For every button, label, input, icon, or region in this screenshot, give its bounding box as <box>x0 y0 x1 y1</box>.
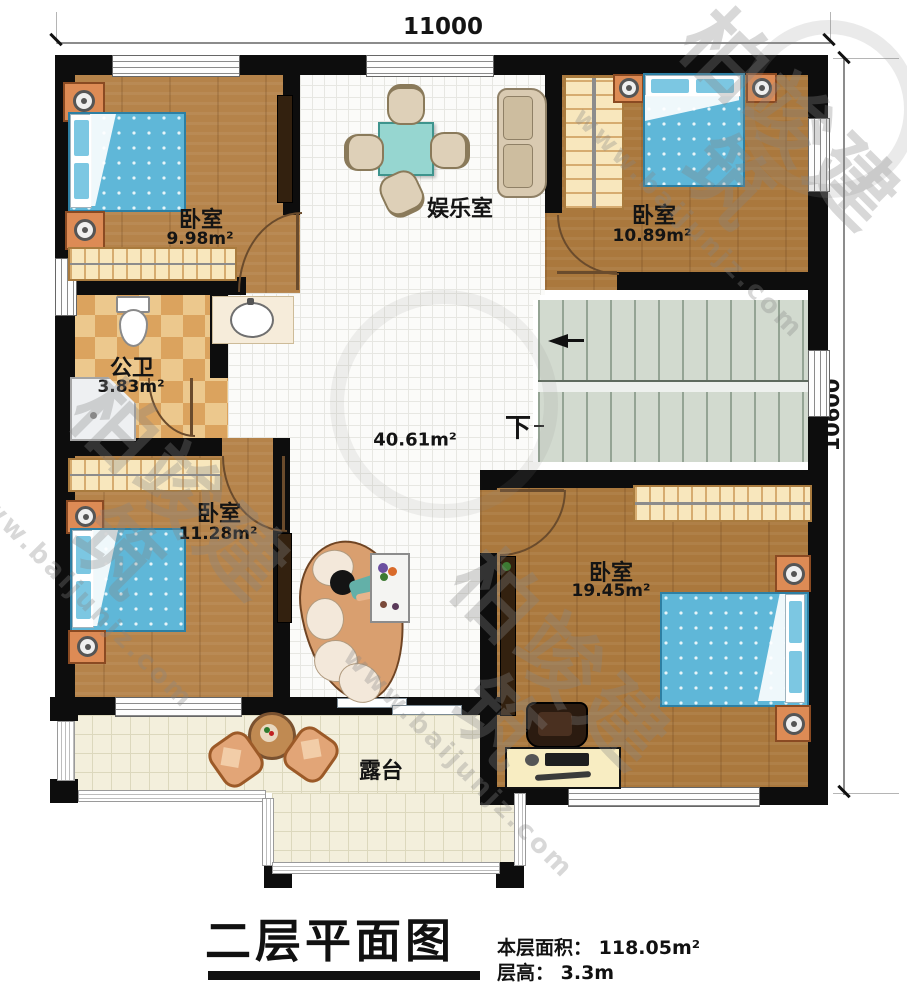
room-area-hall: 40.61m² <box>373 430 457 451</box>
terrace-post <box>50 697 78 721</box>
desk-chair-seat <box>538 712 572 736</box>
window-bottom-bedroom-se <box>568 787 760 807</box>
leaf-icon <box>380 573 388 581</box>
stairs-down-leader <box>534 425 544 427</box>
bed <box>70 528 186 632</box>
bed-sheet-fold <box>758 594 785 701</box>
pillow-icon <box>75 535 92 575</box>
dimension-label-top: 11000 <box>403 14 483 40</box>
floor-plan-canvas: 11000 10600 下 <box>0 0 907 992</box>
decor-dot <box>380 601 387 608</box>
pillow-icon <box>788 600 803 644</box>
nightstand <box>746 73 777 103</box>
flower-icon <box>269 731 274 736</box>
terrace-railing-southwest <box>78 790 266 802</box>
room-area-bedroom-se: 19.45m² <box>572 581 651 601</box>
side-table <box>370 553 410 623</box>
tv-cabinet <box>277 95 293 203</box>
nightstand <box>613 74 644 103</box>
terrace-post <box>50 779 78 803</box>
sofa-cushion <box>503 144 533 188</box>
lamp-icon <box>619 78 639 98</box>
lamp-icon <box>74 219 96 241</box>
plant-icon <box>502 562 511 571</box>
sofa-cushion <box>503 96 533 140</box>
tv-cabinet <box>277 533 292 623</box>
washbasin-icon <box>230 302 274 338</box>
window-top-entertainment <box>366 55 494 77</box>
desk-item <box>535 771 591 781</box>
floor-height-line: 层高： 3.3m <box>497 958 614 985</box>
room-label-terrace: 露台 <box>359 753 403 785</box>
nightstand <box>775 555 811 592</box>
game-table <box>378 122 434 176</box>
tv-cabinet <box>500 556 516 716</box>
page-title: 二层平面图 <box>205 905 455 971</box>
lamp-icon <box>75 506 96 527</box>
bed-sheet-fold <box>92 530 118 626</box>
pillow-icon <box>650 78 690 94</box>
window-top-bedroom-nw <box>112 55 240 77</box>
desk <box>505 747 621 789</box>
door-leaf-bathroom <box>190 378 193 435</box>
wall-bedroom-ne-west <box>545 55 562 213</box>
lamp-icon <box>783 713 805 735</box>
bed <box>643 73 745 187</box>
flower-icon <box>378 563 388 573</box>
wardrobe <box>633 485 812 522</box>
stairs-lower-run <box>538 392 810 462</box>
floor-area-value: 118.05m² <box>599 937 700 959</box>
pillow-icon <box>788 650 803 694</box>
room-area-bathroom: 3.83m² <box>97 377 164 397</box>
nightstand <box>775 705 811 742</box>
stairs-left-edge <box>533 300 538 462</box>
wall-bedroom-se-west <box>480 553 497 805</box>
terrace-railing-left <box>57 721 75 781</box>
pillow-icon <box>73 119 90 157</box>
wall-corner-piece <box>273 438 290 456</box>
room-area-bedroom-sw: 11.28m² <box>179 524 258 544</box>
terrace-railing-south <box>272 862 500 874</box>
sliding-door-terrace-panel <box>392 705 462 715</box>
door-leaf-bedroom-ne <box>557 271 617 274</box>
floor-area-label: 本层面积： <box>497 937 592 959</box>
lamp-icon <box>77 636 98 657</box>
window-bottom-bedroom-sw <box>115 697 242 717</box>
desk-chair <box>526 702 588 748</box>
bed <box>68 112 186 212</box>
wall-bedroom-ne-south <box>617 272 828 290</box>
terrace-railing-step <box>262 798 274 866</box>
wall-bedroom-se-west-top <box>480 470 497 490</box>
shower-drain-icon <box>90 412 97 419</box>
stairs-down-label: 下 <box>505 408 531 445</box>
lamp-icon <box>73 90 95 112</box>
room-area-bedroom-ne: 10.89m² <box>613 226 692 246</box>
floor-height-label: 层高： <box>497 962 554 984</box>
chair <box>430 132 470 169</box>
lamp-icon <box>752 78 772 98</box>
door-leaf-bedroom-nw <box>296 214 299 290</box>
pillow-icon <box>73 162 90 200</box>
nightstand <box>65 211 105 250</box>
floor-height-value: 3.3m <box>561 962 614 984</box>
pillow-icon <box>695 78 735 94</box>
flower-icon <box>388 567 397 576</box>
door-leaf-bedroom-se <box>500 489 564 492</box>
wardrobe <box>68 458 222 492</box>
mouse-icon <box>525 754 539 766</box>
wardrobe <box>68 247 237 281</box>
bed <box>660 592 809 707</box>
title-underline <box>208 971 480 980</box>
sofa <box>497 88 547 198</box>
lamp-icon <box>783 563 805 585</box>
bed-sheet-fold <box>90 114 116 206</box>
door-leaf-bedroom-sw <box>282 456 285 530</box>
window-right-stairwell <box>808 350 830 417</box>
faucet-icon <box>247 298 254 305</box>
nightstand <box>68 630 106 664</box>
stairs-arrow-tail <box>568 339 584 342</box>
floor-area-line: 本层面积： 118.05m² <box>497 933 700 960</box>
bed-sheet-fold <box>645 95 739 121</box>
lounge-cushion <box>306 598 344 640</box>
window-right-bedroom-ne <box>808 118 830 192</box>
stairs-direction-arrow-icon <box>548 334 568 348</box>
terrace-chair-seat <box>221 747 242 768</box>
chair <box>344 134 384 171</box>
decor-dot <box>392 603 399 610</box>
dimension-tick <box>822 33 835 46</box>
terrace-chair-seat <box>301 739 322 760</box>
room-area-bedroom-nw: 9.98m² <box>166 229 233 249</box>
keyboard-icon <box>545 753 589 766</box>
dimension-line-top <box>57 42 830 44</box>
pillow-icon <box>75 580 92 620</box>
room-label-entertainment: 娱乐室 <box>427 191 493 223</box>
chair <box>387 84 425 125</box>
terrace-railing-east <box>514 793 526 866</box>
